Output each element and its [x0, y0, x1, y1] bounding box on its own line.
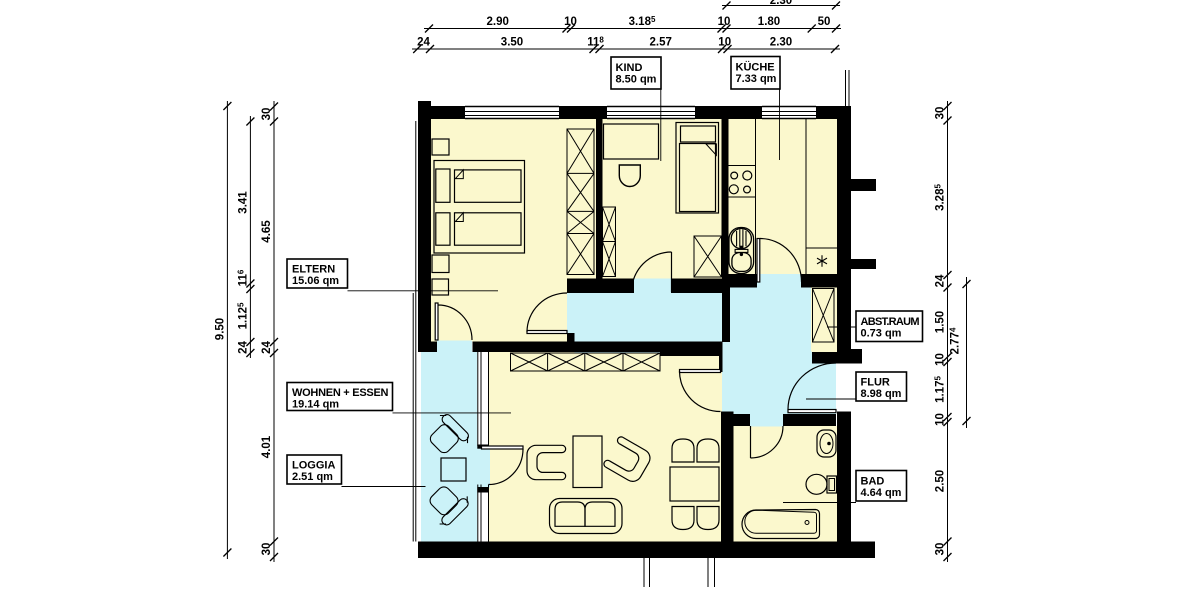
svg-text:10: 10 [935, 353, 947, 366]
svg-text:24: 24 [417, 37, 430, 49]
svg-text:9.50: 9.50 [214, 318, 226, 340]
svg-text:3.50: 3.50 [501, 37, 523, 49]
svg-text:BAD: BAD [861, 476, 885, 488]
svg-text:ABST.RAUM: ABST.RAUM [861, 316, 920, 328]
svg-text:10: 10 [935, 413, 947, 426]
svg-text:ELTERN: ELTERN [292, 264, 335, 276]
svg-text:2.30: 2.30 [770, 0, 792, 7]
svg-text:24: 24 [237, 341, 249, 354]
svg-text:1.50: 1.50 [935, 311, 947, 333]
svg-text:LOGGIA: LOGGIA [292, 460, 335, 472]
svg-text:7.33 qm: 7.33 qm [736, 73, 777, 85]
svg-text:0.73 qm: 0.73 qm [861, 328, 902, 340]
svg-text:2.57: 2.57 [650, 37, 672, 49]
svg-text:WOHNEN + ESSEN: WOHNEN + ESSEN [292, 387, 389, 399]
svg-text:2.90: 2.90 [487, 16, 509, 28]
svg-text:30: 30 [935, 543, 947, 556]
svg-text:FLUR: FLUR [861, 377, 890, 389]
svg-text:15.06 qm: 15.06 qm [292, 275, 339, 287]
svg-text:10: 10 [718, 16, 731, 28]
svg-text:2.30: 2.30 [770, 37, 792, 49]
svg-text:8.98 qm: 8.98 qm [861, 388, 902, 400]
svg-text:3.41: 3.41 [237, 191, 249, 214]
svg-text:19.14 qm: 19.14 qm [292, 399, 339, 411]
svg-text:30: 30 [261, 543, 273, 556]
svg-text:4.01: 4.01 [261, 435, 273, 458]
svg-text:10: 10 [718, 37, 731, 49]
svg-text:24: 24 [261, 341, 273, 354]
svg-text:50: 50 [818, 16, 831, 28]
svg-text:4.64 qm: 4.64 qm [861, 487, 902, 499]
svg-text:4.65: 4.65 [261, 220, 273, 243]
svg-text:KÜCHE: KÜCHE [736, 61, 775, 74]
svg-text:30: 30 [261, 108, 273, 121]
svg-text:1.80: 1.80 [758, 16, 780, 28]
svg-text:8.50 qm: 8.50 qm [616, 74, 657, 86]
svg-text:24: 24 [935, 274, 947, 287]
svg-text:2.51 qm: 2.51 qm [292, 471, 333, 483]
svg-text:10: 10 [564, 16, 577, 28]
svg-text:KIND: KIND [616, 62, 643, 74]
svg-text:2.50: 2.50 [935, 470, 947, 492]
svg-text:30: 30 [935, 107, 947, 120]
